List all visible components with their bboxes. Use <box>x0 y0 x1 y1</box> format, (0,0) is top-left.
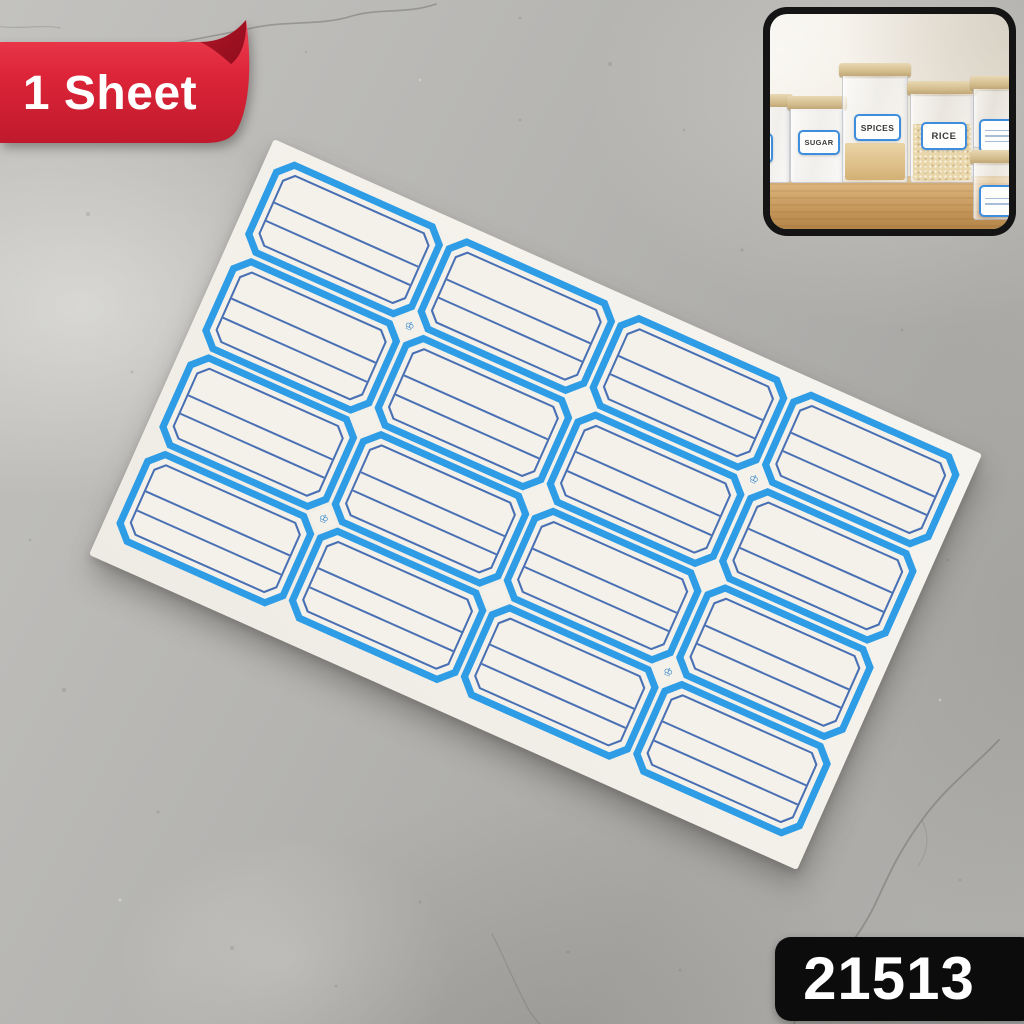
jar-label-blank <box>979 119 1009 153</box>
die-cut-diamond <box>353 409 380 436</box>
sheet-count-text: 1 Sheet <box>14 69 206 119</box>
brand-mark-icon: ♔ <box>402 320 415 334</box>
die-cut-diamond <box>481 582 508 609</box>
brand-mark-icon: ♔ <box>747 473 760 487</box>
jar-label-text: SPICES <box>861 123 895 133</box>
container-sugar: SUGAR <box>790 96 844 183</box>
container-lid <box>839 63 911 77</box>
container-body: SUGAR <box>790 109 844 183</box>
jar-label-sugar: SUGAR <box>798 130 840 155</box>
die-cut-diamond: ♔ <box>654 659 681 686</box>
die-cut-diamond: ♔ <box>395 313 422 340</box>
usage-example-inset: SUGAR SPICES RICE <box>763 7 1016 236</box>
spices-contents <box>845 143 905 180</box>
product-code-text: 21513 <box>803 949 1009 1009</box>
container-lid <box>787 96 847 110</box>
container-body: SPICES <box>842 76 908 183</box>
container-lid <box>970 150 1009 164</box>
container-lid <box>907 81 977 95</box>
container-body: RICE <box>910 94 974 183</box>
brand-mark-icon: ♔ <box>661 666 674 680</box>
label-sheet: ♔♔♔♔ <box>89 139 982 870</box>
die-cut-diamond <box>697 562 724 589</box>
die-cut-diamond <box>524 485 551 512</box>
container-blank-top <box>973 76 1009 148</box>
jar-label-text: RICE <box>931 131 956 142</box>
jar-label-blank <box>979 185 1009 217</box>
die-cut-diamond <box>567 390 594 417</box>
container-blank-bottom <box>973 150 1009 220</box>
product-code-badge: 21513 <box>775 937 1024 1021</box>
die-cut-diamond: ♔ <box>310 506 337 533</box>
container-rice: RICE <box>910 81 974 183</box>
container-body <box>770 107 790 183</box>
die-cut-diamond: ♔ <box>740 466 767 493</box>
jar-label-text: SUGAR <box>804 138 833 147</box>
brand-mark-icon: ♔ <box>316 512 329 526</box>
jar-label-partial <box>770 133 773 163</box>
container-body <box>973 163 1009 220</box>
container-body <box>973 89 1009 148</box>
sheet-count-ribbon: 1 Sheet <box>0 12 262 162</box>
jar-label-spices: SPICES <box>854 114 901 141</box>
product-photo: ♔♔♔♔ 1 Sheet <box>0 0 1024 1024</box>
jar-label-rice: RICE <box>921 122 967 150</box>
container-spices: SPICES <box>842 63 908 183</box>
inset-photo: SUGAR SPICES RICE <box>770 14 1009 229</box>
container-lid <box>970 76 1009 90</box>
